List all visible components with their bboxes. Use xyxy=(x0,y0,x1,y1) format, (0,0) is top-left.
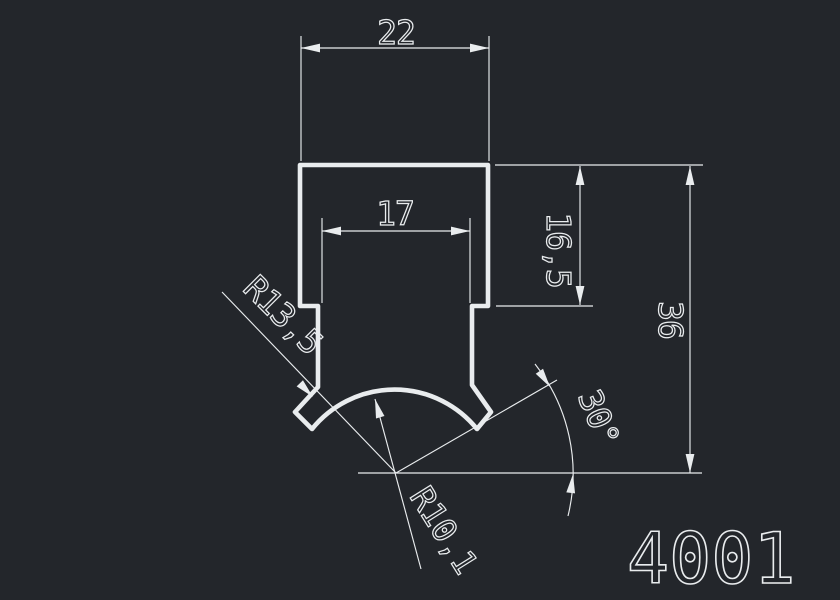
dim-shoulder-height: 16,5 xyxy=(495,165,703,306)
radius-leader[interactable] xyxy=(375,399,421,569)
arrowhead xyxy=(470,44,489,53)
arrowhead xyxy=(536,369,554,390)
arrowhead xyxy=(686,166,695,185)
dim-slot-width: 17 xyxy=(322,194,470,303)
part-number-label[interactable]: 4001 xyxy=(627,518,796,600)
arrowhead xyxy=(686,454,695,473)
dim-top-width: 22 xyxy=(301,13,489,161)
dim-slot-width-value[interactable]: 17 xyxy=(376,194,414,233)
dim-outer-radius: R13,5 xyxy=(222,268,396,473)
arrowhead xyxy=(451,227,470,236)
angle-arc[interactable] xyxy=(535,364,573,516)
arrowhead xyxy=(322,227,341,236)
arrowhead xyxy=(576,166,585,185)
arrowhead xyxy=(301,44,320,53)
arrowhead xyxy=(371,398,385,419)
dim-top-width-value[interactable]: 22 xyxy=(377,13,415,52)
dim-shoulder-height-value[interactable]: 16,5 xyxy=(539,212,578,287)
dim-groove-radius: R10,1 xyxy=(371,398,486,580)
arrowhead xyxy=(566,473,577,493)
cad-viewport: 22 17 16,5 36 xyxy=(0,0,840,600)
dim-groove-radius-value[interactable]: R10,1 xyxy=(402,480,485,581)
arrowhead xyxy=(576,286,585,305)
dim-angle-value[interactable]: 30° xyxy=(570,384,627,451)
drawing-canvas[interactable]: 22 17 16,5 36 xyxy=(0,0,840,600)
dim-overall-height-value[interactable]: 36 xyxy=(651,301,690,339)
